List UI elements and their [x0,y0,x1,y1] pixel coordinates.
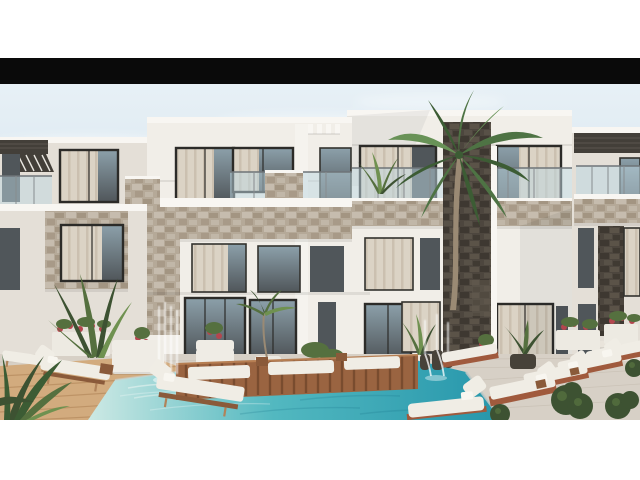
window [176,148,234,202]
planter [604,324,638,344]
window [420,238,440,290]
right-pergola [574,133,640,153]
window [192,244,246,292]
side-table [256,357,268,366]
balcony-balustrade [0,176,52,204]
property-rendering-photo [0,58,640,420]
page-background [0,0,640,480]
planter [556,330,600,350]
rendering-canvas [0,58,640,420]
window [578,228,594,288]
window [60,150,118,202]
window [365,238,413,290]
stone-fascia [574,199,640,223]
side-table [336,353,347,361]
window [310,246,344,292]
left-pergola [0,140,48,154]
window [0,228,20,290]
stone-band [180,207,352,239]
right-balcony-balustrade [576,166,640,196]
window [624,228,640,296]
side-table [99,363,113,375]
window [61,225,123,281]
window [258,246,300,292]
letterbox-bar [0,58,640,84]
